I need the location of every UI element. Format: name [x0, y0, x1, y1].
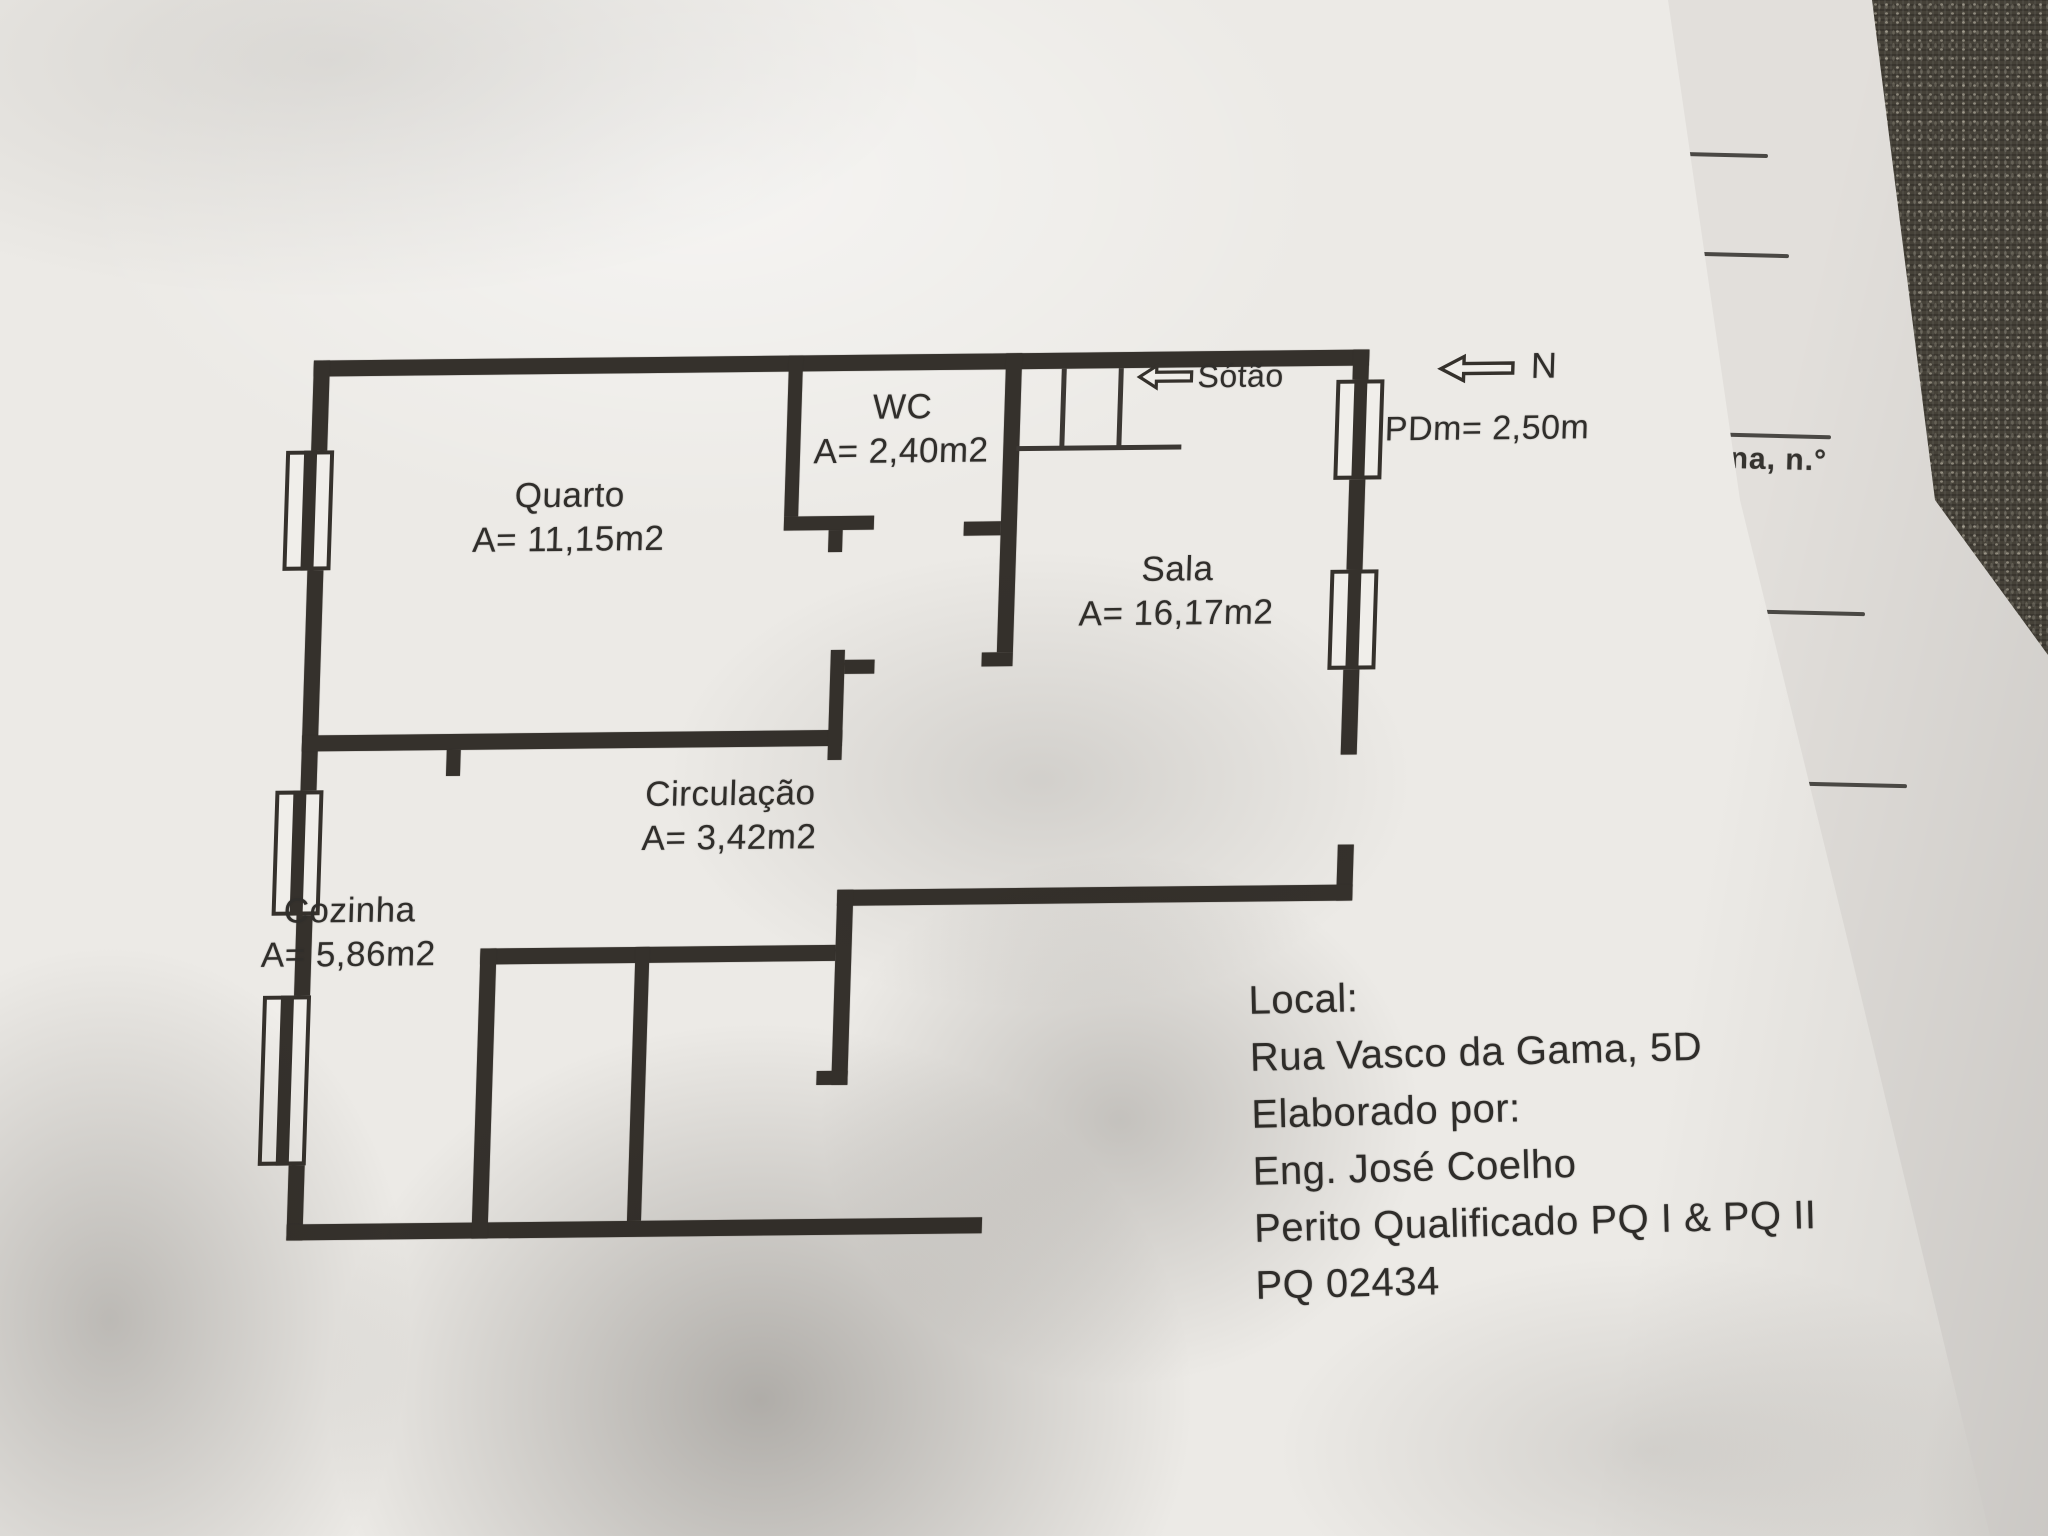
room-label-cozinha: Cozinha A= 5,86m2: [260, 888, 438, 978]
window-symbol-cozinha-2: [258, 995, 311, 1165]
wall-quarto-bottom: [302, 730, 843, 752]
room-area: A= 16,17m2: [1078, 590, 1274, 636]
door-jamb: [828, 530, 843, 552]
attic-arrow-icon: [1136, 362, 1195, 391]
wall-cozinha-right: [471, 948, 496, 1238]
info-block: Local: Rua Vasco da Gama, 5D Elaborado p…: [1248, 959, 1819, 1315]
door-jamb: [981, 652, 1012, 666]
wall-circulacao-bottom: [480, 945, 836, 965]
door-jamb: [816, 1071, 847, 1085]
underpage-line: [1765, 610, 1865, 616]
wall-wc-left: [784, 355, 803, 516]
wall-sala-left: [997, 353, 1022, 652]
wall-store-right: [831, 890, 853, 1085]
attic-label: Sótão: [1197, 357, 1284, 395]
stair-landing-line: [1016, 444, 1181, 451]
door-jamb: [964, 521, 1001, 535]
underpage-line: [1697, 252, 1789, 258]
room-label-sala: Sala A= 16,17m2: [1078, 546, 1276, 636]
stair-tread: [1116, 368, 1123, 447]
underpage-line: [1727, 433, 1831, 440]
room-name: WC: [814, 384, 990, 430]
north-label: N: [1530, 345, 1558, 387]
wall-lower-partition: [627, 947, 650, 1221]
room-label-wc: WC A= 2,40m2: [813, 384, 991, 474]
window-center-line: [1345, 570, 1361, 670]
room-name: Circulação: [642, 771, 818, 817]
ceiling-height-label: PDm= 2,50m: [1384, 408, 1590, 449]
room-area: A= 5,86m2: [260, 932, 436, 978]
door-jamb: [844, 660, 874, 674]
room-label-quarto: Quarto A= 11,15m2: [472, 473, 667, 563]
room-area: A= 2,40m2: [813, 428, 989, 474]
window-symbol-sala-1: [1333, 379, 1384, 479]
north-arrow-icon: [1436, 353, 1517, 384]
room-area: A= 11,15m2: [472, 517, 666, 563]
wall-wc-bottom: [784, 516, 874, 531]
window-center-line: [1351, 380, 1367, 480]
window-center-line: [300, 450, 317, 570]
stair-tread: [1059, 369, 1066, 448]
door-jamb: [446, 750, 461, 776]
window-center-line: [276, 996, 294, 1166]
wall-circulacao-right: [827, 650, 844, 760]
underpage-line: [1682, 152, 1768, 158]
window-symbol-sala-2: [1327, 569, 1378, 669]
room-label-circulacao: Circulação A= 3,42m2: [641, 771, 819, 861]
room-name: Quarto: [473, 473, 667, 519]
window-symbol-quarto: [282, 450, 334, 570]
room-area: A= 3,42m2: [641, 815, 817, 861]
room-name: Cozinha: [262, 888, 438, 934]
room-name: Sala: [1079, 546, 1275, 592]
underpage-line: [1807, 782, 1907, 788]
wall-sala-bottom: [837, 884, 1353, 905]
